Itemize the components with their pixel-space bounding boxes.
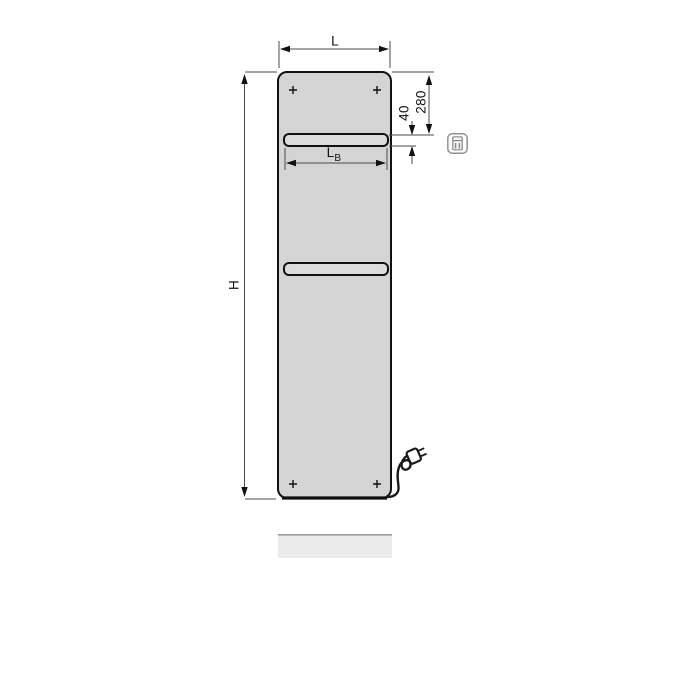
floor-reflection: [278, 534, 392, 558]
power-plug-icon: [387, 445, 428, 497]
towel-rail-slot-top: [284, 134, 388, 146]
rail-width-base: L: [327, 145, 335, 160]
electric-controller-icon: [448, 134, 467, 153]
radiator-dimension-diagram: L H 280 40 LB: [0, 0, 700, 700]
technical-drawing-canvas: [0, 0, 700, 700]
towel-rail-slot-middle: [284, 263, 388, 275]
rail-width-dimension-label: LB: [327, 146, 342, 164]
rail-width-subscript: B: [334, 153, 341, 164]
width-dimension-label: L: [331, 34, 339, 48]
height-dimension-label: H: [227, 280, 241, 290]
top-to-rail-dimension-label: 280: [414, 90, 428, 113]
rail-slot-height-dimension-label: 40: [397, 105, 411, 121]
